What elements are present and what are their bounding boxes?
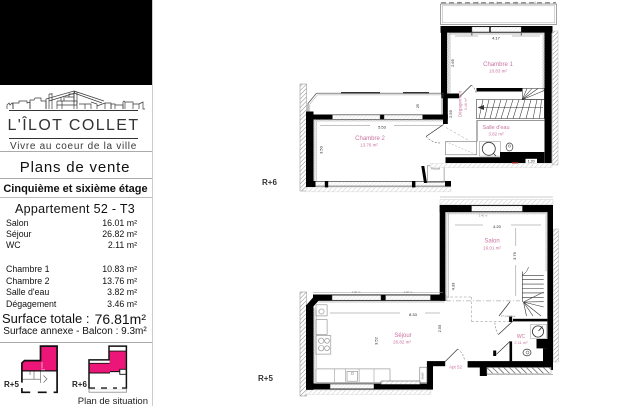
svg-text:Apt 52: Apt 52 (449, 365, 463, 370)
svg-text:Chambre 2: Chambre 2 (355, 136, 385, 142)
svg-text:4.33: 4.33 (451, 282, 456, 291)
svg-text:4.17: 4.17 (492, 36, 501, 41)
svg-text:2.59: 2.59 (448, 109, 453, 118)
svg-text:2.65: 2.65 (450, 58, 455, 67)
svg-text:Séjour: Séjour (394, 333, 411, 339)
svg-text:17 marches: 17 marches (501, 314, 516, 318)
svg-text:3.52: 3.52 (374, 336, 379, 345)
svg-text:R+6: R+6 (262, 178, 277, 187)
svg-text:2.40 m: 2.40 m (479, 214, 488, 218)
svg-text:16.01 m²: 16.01 m² (483, 246, 501, 251)
svg-text:2.55: 2.55 (437, 324, 442, 333)
svg-text:4.20: 4.20 (493, 224, 502, 229)
svg-text:3.46 m²: 3.46 m² (464, 97, 468, 110)
svg-text:Chambre 1: Chambre 1 (483, 62, 513, 68)
svg-text:10.83 m²: 10.83 m² (489, 69, 507, 74)
svg-text:5.53: 5.53 (378, 125, 387, 130)
svg-text:1.20: 1.20 (528, 159, 535, 163)
svg-text:Salon: Salon (484, 239, 499, 245)
svg-text:2.11 m²: 2.11 m² (514, 340, 528, 345)
svg-text:3.79: 3.79 (512, 251, 517, 260)
svg-text:25: 25 (416, 104, 420, 108)
svg-text:Salle d'eau: Salle d'eau (482, 125, 509, 131)
svg-text:2.40 m: 2.40 m (352, 290, 361, 294)
svg-text:26.82 m²: 26.82 m² (393, 340, 411, 345)
svg-text:13.76 m²: 13.76 m² (360, 143, 378, 148)
svg-text:3.82 m²: 3.82 m² (488, 132, 504, 137)
svg-text:Dégagement: Dégagement (458, 90, 463, 117)
svg-text:30x60: 30x60 (421, 372, 425, 380)
svg-text:2.40 m: 2.40 m (404, 290, 413, 294)
svg-text:8.33: 8.33 (409, 312, 418, 317)
svg-text:3.50: 3.50 (319, 145, 324, 154)
svg-text:R+5: R+5 (258, 374, 273, 383)
